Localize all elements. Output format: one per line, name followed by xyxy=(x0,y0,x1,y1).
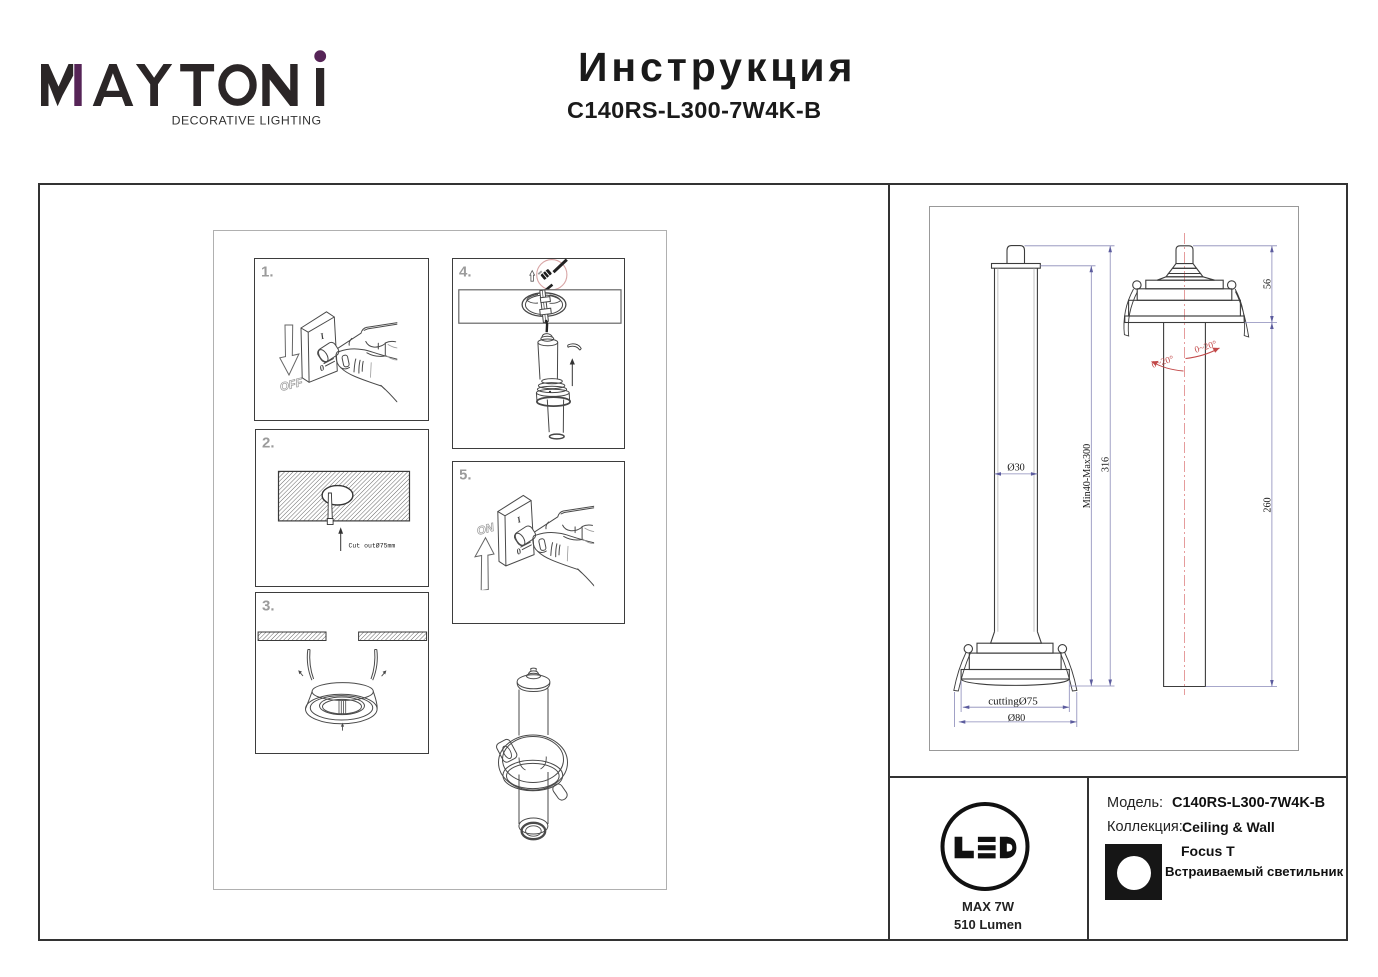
svg-text:260: 260 xyxy=(1263,497,1274,512)
svg-text:cuttingØ75: cuttingØ75 xyxy=(988,696,1038,708)
svg-text:3.: 3. xyxy=(262,598,275,615)
svg-text:0~20°: 0~20° xyxy=(1150,353,1175,370)
svg-text:OFF: OFF xyxy=(279,376,305,393)
svg-text:316: 316 xyxy=(1101,457,1112,472)
svg-text:Ø30: Ø30 xyxy=(1007,463,1025,474)
svg-text:56: 56 xyxy=(1263,279,1274,289)
svg-text:1.: 1. xyxy=(261,264,274,281)
svg-text:Cut outØ75mm: Cut outØ75mm xyxy=(349,542,396,550)
svg-text:Min40-Max300: Min40-Max300 xyxy=(1082,444,1093,509)
svg-text:ON: ON xyxy=(476,522,496,538)
svg-text:4.: 4. xyxy=(459,264,472,281)
svg-text:Ø80: Ø80 xyxy=(1008,713,1026,724)
svg-text:2.: 2. xyxy=(262,435,275,452)
svg-text:5.: 5. xyxy=(459,467,472,484)
